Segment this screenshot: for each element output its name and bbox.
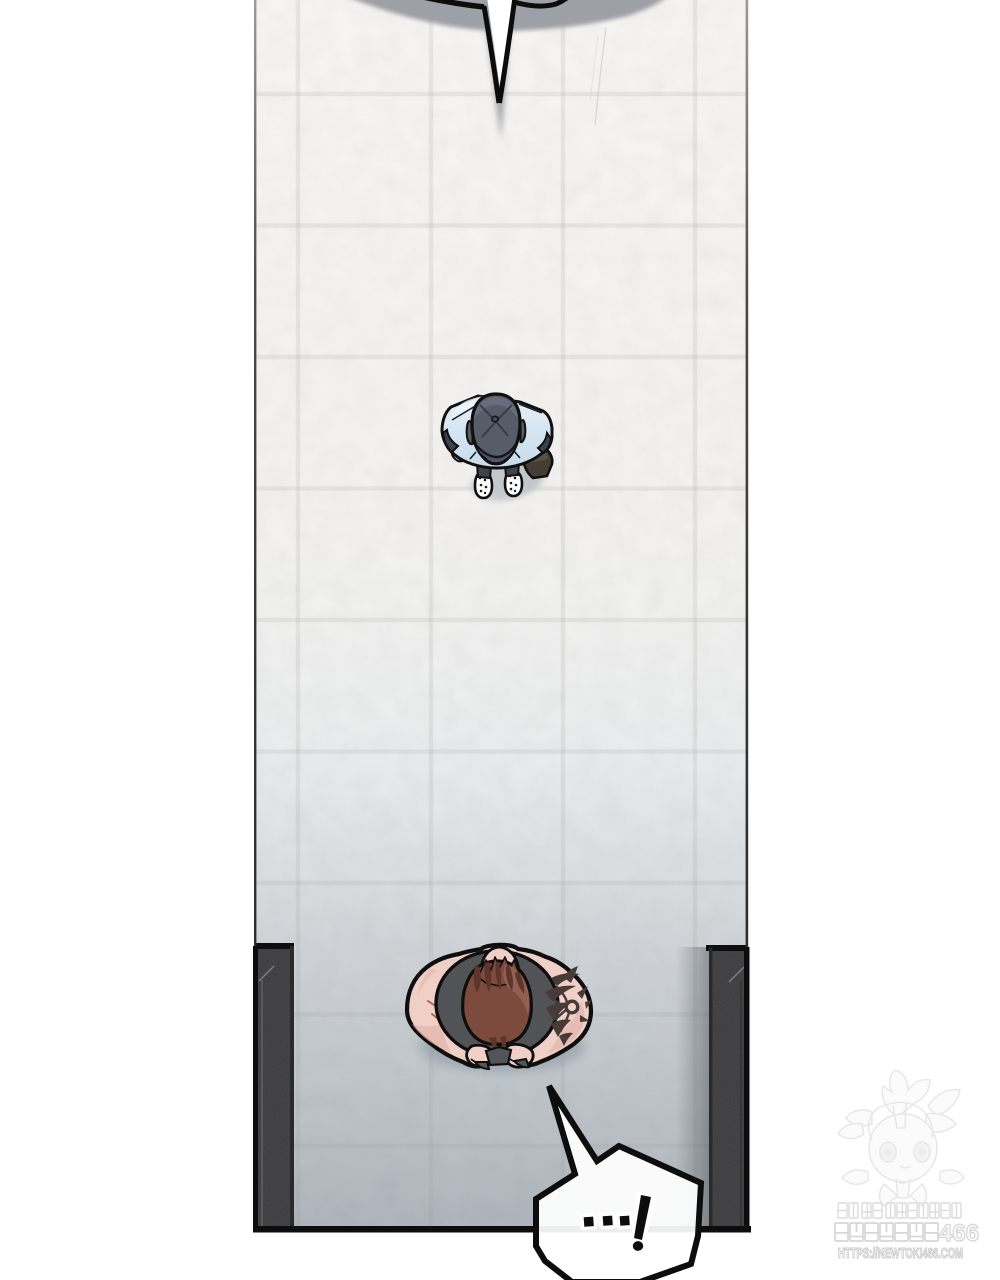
svg-text:466: 466 [939, 1220, 979, 1247]
svg-text:HTTPS://NEWTOKI466.COM: HTTPS://NEWTOKI466.COM [838, 1245, 963, 1262]
